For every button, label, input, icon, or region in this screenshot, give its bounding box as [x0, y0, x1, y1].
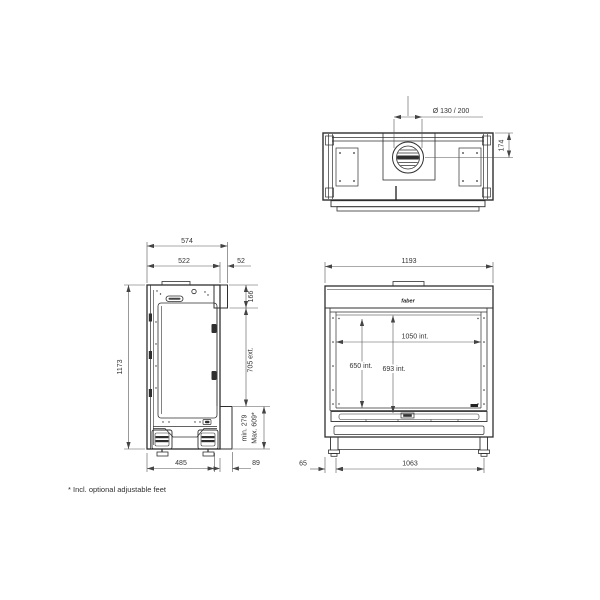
dim-front-panel-depth-label: 89 [252, 460, 260, 467]
right-panel [459, 148, 481, 186]
adjustable-foot [203, 452, 214, 456]
base-plate-lower [337, 207, 479, 211]
flue-grille [396, 150, 420, 166]
dim-width-total-label: 1193 [401, 258, 416, 265]
side-view [147, 282, 232, 457]
caster-right [198, 430, 218, 456]
dim-base-min-label: min. 279 [242, 414, 249, 441]
top-view-dimensions: Ø 130 / 200 174 [394, 96, 513, 158]
top-view [323, 133, 493, 211]
front-glass-section [214, 285, 228, 308]
flue-cap [393, 282, 424, 287]
adjustable-foot [329, 450, 340, 454]
adjustable-foot [157, 452, 168, 456]
brand-logo: faber [401, 299, 415, 305]
base-plate [331, 201, 485, 207]
dim-front-section-label: 52 [237, 258, 245, 265]
dim-depth-body-label: 522 [178, 258, 190, 265]
knob [192, 289, 196, 293]
dim-glass-interior-height-label: 650 int. [350, 363, 373, 370]
front-view-dimensions: 1193 1050 int. 650 int. 693 int. 65 1063 [299, 258, 493, 473]
caster-left [152, 430, 172, 456]
legs [329, 437, 490, 456]
top-view-outline [323, 133, 493, 200]
dim-interior-height-label: 693 int. [383, 366, 406, 373]
fireplace-drawing: Ø 130 / 200 174 [0, 0, 600, 600]
technical-drawing-page: Ø 130 / 200 174 [0, 0, 600, 600]
front-bottom-panel [220, 407, 232, 450]
dim-base-depth-label: 485 [175, 460, 187, 467]
inner-chamber [158, 303, 217, 418]
dim-interior-width-label: 1050 int. [402, 334, 429, 341]
plinth [334, 426, 484, 435]
left-panel [336, 148, 358, 186]
dim-height-total-label: 1173 [117, 359, 124, 374]
screw-dots [155, 290, 208, 422]
dim-flue-diameter-label: Ø 130 / 200 [433, 108, 470, 115]
dim-feet-span-label: 1063 [402, 461, 418, 468]
dim-flue-offset-label: 174 [499, 140, 506, 152]
frame-screw-dots [332, 317, 485, 405]
adjustable-foot [479, 450, 490, 454]
dim-base-max-label: Max. 609* [252, 412, 259, 444]
dim-exterior-height-label: 705 ext. [248, 347, 255, 372]
dim-glass-height-label: 166 [248, 291, 255, 303]
dim-depth-total-label: 574 [181, 238, 193, 245]
glass-brand-mark [471, 404, 479, 407]
dim-foot-inset-label: 65 [299, 461, 307, 468]
footnote: * Incl. optional adjustable feet [68, 485, 167, 494]
latch-tabs [149, 314, 217, 398]
